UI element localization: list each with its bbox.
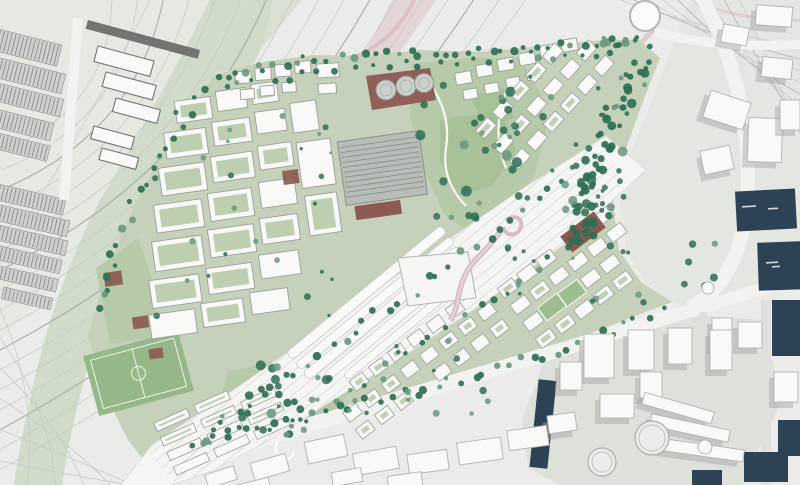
- tree: [455, 62, 460, 67]
- tree: [497, 143, 502, 148]
- tree: [432, 369, 436, 373]
- tree: [118, 225, 126, 233]
- tree: [284, 62, 292, 70]
- tree: [96, 305, 103, 312]
- tree: [189, 443, 195, 449]
- tree: [471, 120, 478, 127]
- tree: [603, 105, 609, 111]
- building-roof: [240, 89, 255, 100]
- tree: [228, 172, 234, 178]
- tree: [256, 360, 266, 370]
- tree: [640, 299, 646, 305]
- tree: [513, 256, 518, 261]
- tree: [573, 229, 580, 236]
- tree: [249, 78, 253, 82]
- tree: [461, 186, 472, 197]
- tree: [522, 249, 526, 253]
- tree: [259, 426, 267, 434]
- building-roof: [774, 372, 798, 402]
- tree: [491, 48, 499, 56]
- tree: [304, 419, 308, 423]
- tree: [521, 45, 526, 50]
- tree: [291, 398, 298, 405]
- building-roof: [547, 412, 577, 434]
- tree: [413, 52, 421, 60]
- building-roof: [290, 100, 320, 133]
- navy-roof-building: [692, 470, 722, 485]
- tree: [273, 363, 281, 371]
- tree: [425, 335, 431, 341]
- tree: [599, 208, 604, 213]
- tree: [295, 61, 300, 66]
- tree: [348, 388, 353, 393]
- tree: [232, 70, 238, 76]
- tree: [238, 413, 246, 421]
- tree: [373, 51, 378, 56]
- tree: [573, 208, 581, 216]
- tree: [561, 181, 569, 189]
- tree: [227, 127, 232, 132]
- tree: [621, 249, 626, 254]
- tree: [323, 124, 329, 130]
- tree: [681, 281, 688, 288]
- tree: [685, 258, 692, 265]
- tree: [152, 175, 158, 181]
- tree: [497, 226, 504, 233]
- tree: [458, 381, 464, 387]
- tree: [243, 425, 250, 432]
- tree: [189, 111, 197, 119]
- tree: [433, 52, 439, 58]
- tree: [474, 244, 481, 251]
- tree: [613, 43, 619, 49]
- building-roof: [721, 24, 750, 46]
- tree: [245, 391, 254, 400]
- tree: [317, 132, 321, 136]
- city-building: [623, 330, 654, 376]
- tree: [358, 318, 364, 324]
- tree: [485, 398, 491, 404]
- tree: [113, 263, 117, 267]
- tree: [563, 53, 567, 57]
- tree: [270, 419, 278, 427]
- tree: [532, 354, 539, 361]
- tree: [290, 373, 296, 379]
- building-roof: [560, 362, 582, 390]
- tree: [330, 278, 334, 282]
- tree: [274, 257, 280, 263]
- tree: [353, 64, 358, 69]
- tree: [242, 69, 250, 77]
- maroon-building: [148, 348, 163, 360]
- tree: [607, 203, 615, 211]
- tree: [296, 405, 304, 413]
- tree: [590, 220, 598, 228]
- tree: [662, 306, 667, 311]
- tree: [286, 77, 293, 84]
- tree: [596, 166, 603, 173]
- tree: [627, 74, 633, 80]
- tree: [439, 177, 447, 185]
- tree: [444, 376, 449, 381]
- tree: [511, 122, 519, 130]
- masterplan-canvas: [0, 0, 800, 485]
- tree: [440, 82, 447, 89]
- building-roof: [484, 82, 500, 94]
- tree: [220, 414, 225, 419]
- tree: [231, 205, 237, 211]
- tree: [571, 257, 574, 260]
- tree: [536, 267, 542, 273]
- tree: [510, 47, 518, 55]
- tree: [225, 434, 232, 441]
- tree: [585, 145, 592, 152]
- tree: [601, 113, 605, 117]
- city-building: [579, 334, 614, 384]
- tree: [397, 52, 401, 56]
- tree: [311, 58, 317, 64]
- tree: [387, 64, 393, 70]
- tree: [283, 399, 291, 407]
- tree: [520, 207, 525, 212]
- tree: [550, 168, 554, 172]
- tree: [471, 56, 475, 60]
- tree: [315, 375, 320, 380]
- tree: [163, 146, 168, 151]
- tree: [361, 395, 368, 402]
- tree: [207, 274, 211, 278]
- tree: [539, 113, 547, 121]
- tree: [505, 87, 515, 97]
- tree: [106, 250, 114, 258]
- tree: [298, 417, 303, 422]
- tree: [625, 111, 630, 116]
- tree: [337, 402, 345, 410]
- tree: [445, 338, 451, 344]
- tree: [574, 142, 579, 147]
- tree: [260, 68, 265, 73]
- tree: [592, 154, 598, 160]
- tree: [581, 156, 590, 165]
- tree: [201, 155, 207, 161]
- tree: [642, 82, 647, 87]
- tree: [607, 242, 614, 249]
- tree: [144, 183, 149, 188]
- tree: [301, 427, 307, 433]
- navy-roof-building: [778, 420, 800, 456]
- tree: [576, 238, 583, 245]
- tree: [226, 75, 232, 81]
- building-roof: [761, 56, 793, 79]
- tree: [498, 94, 504, 100]
- tree: [344, 338, 351, 345]
- tree: [599, 326, 607, 334]
- tree: [362, 383, 367, 388]
- tree: [272, 78, 278, 84]
- tree: [426, 272, 434, 280]
- navy-roof-building: [735, 188, 797, 231]
- tree: [223, 252, 227, 256]
- tree: [299, 69, 304, 74]
- tree: [590, 298, 595, 303]
- building-roof: [738, 322, 762, 348]
- tree: [320, 270, 324, 274]
- tree: [255, 426, 260, 431]
- tree: [630, 316, 635, 321]
- tree: [537, 196, 542, 201]
- tree: [267, 409, 277, 419]
- tree: [565, 244, 571, 250]
- tree: [609, 35, 616, 42]
- tree: [323, 408, 328, 413]
- tree: [504, 106, 512, 114]
- tree: [248, 404, 252, 408]
- tree: [369, 307, 376, 314]
- tree: [528, 75, 532, 79]
- tree: [635, 292, 641, 298]
- tree: [465, 212, 472, 219]
- circular-building: [630, 1, 660, 31]
- tree: [544, 254, 550, 260]
- tree: [319, 174, 325, 180]
- tree: [269, 61, 276, 68]
- tree: [253, 239, 258, 244]
- tree: [102, 291, 108, 297]
- tree: [226, 140, 230, 144]
- tree: [113, 243, 118, 248]
- tree: [594, 54, 600, 60]
- tree: [313, 68, 319, 74]
- tree: [403, 351, 407, 355]
- tree: [477, 201, 482, 206]
- tree: [404, 388, 411, 395]
- tree: [192, 95, 197, 100]
- tree: [380, 376, 386, 382]
- tree: [710, 274, 718, 282]
- tree: [406, 397, 411, 402]
- tree: [550, 56, 556, 62]
- tree: [482, 147, 489, 154]
- tree: [516, 283, 521, 288]
- tree: [514, 130, 520, 136]
- tree: [529, 50, 533, 54]
- tree: [362, 50, 370, 58]
- tree: [185, 278, 190, 283]
- tree: [283, 432, 289, 438]
- tree: [138, 186, 145, 193]
- tree: [414, 64, 421, 71]
- building-roof: [463, 88, 479, 100]
- tree: [284, 372, 290, 378]
- tree: [562, 206, 569, 213]
- storage-tank: [635, 421, 669, 455]
- tree: [570, 165, 575, 170]
- tree: [607, 50, 613, 56]
- silo-tank: [415, 74, 434, 93]
- tree: [469, 411, 474, 416]
- tree: [506, 248, 510, 252]
- tree: [640, 69, 649, 78]
- tree: [289, 424, 294, 429]
- tree: [394, 344, 398, 348]
- tree: [518, 292, 522, 296]
- tree: [582, 229, 590, 237]
- tree: [479, 301, 486, 308]
- tree: [218, 420, 223, 425]
- building-roof: [584, 334, 614, 378]
- tree: [277, 404, 281, 408]
- tree: [306, 364, 311, 369]
- tree: [460, 140, 469, 149]
- tree: [535, 54, 542, 61]
- tree: [539, 356, 546, 363]
- tree: [268, 428, 272, 432]
- tree: [595, 44, 599, 48]
- tree: [621, 194, 627, 200]
- tree: [486, 59, 493, 66]
- tree: [474, 374, 481, 381]
- silo-tank: [376, 80, 396, 100]
- tree: [602, 141, 609, 148]
- tree: [479, 387, 486, 394]
- tree: [568, 196, 577, 205]
- tree: [225, 84, 230, 89]
- tree: [171, 135, 177, 141]
- tree: [509, 60, 513, 64]
- building-roof: [780, 100, 800, 130]
- tree: [127, 199, 132, 204]
- building-roof: [296, 138, 336, 188]
- tree: [329, 151, 332, 154]
- tree: [712, 241, 718, 247]
- tree: [635, 35, 640, 40]
- tree: [211, 427, 216, 432]
- tree: [387, 307, 394, 314]
- tree: [309, 397, 315, 403]
- tree: [501, 150, 512, 161]
- tree: [382, 360, 389, 367]
- tree: [438, 59, 443, 64]
- tree: [489, 235, 497, 243]
- tree: [626, 251, 630, 255]
- tree: [491, 296, 498, 303]
- tree: [313, 352, 321, 360]
- tree: [271, 375, 280, 384]
- tree: [433, 213, 440, 220]
- tree: [449, 215, 455, 221]
- tree: [532, 259, 536, 263]
- tree: [546, 46, 550, 50]
- tree: [593, 203, 598, 208]
- tree: [498, 49, 503, 54]
- tree: [262, 391, 269, 398]
- tree: [396, 350, 400, 354]
- tree: [507, 135, 512, 140]
- tree: [275, 391, 283, 399]
- tree: [589, 232, 597, 240]
- tree: [567, 43, 573, 49]
- maroon-building: [132, 315, 150, 329]
- building-roof: [744, 452, 788, 482]
- silo-tank: [396, 76, 416, 96]
- building-roof: [258, 250, 301, 279]
- tree: [309, 409, 316, 416]
- tree: [621, 320, 625, 324]
- tree: [158, 153, 162, 157]
- tree: [200, 440, 207, 447]
- tree: [618, 147, 628, 157]
- tree: [340, 52, 346, 58]
- tree: [354, 331, 359, 336]
- tree: [216, 74, 222, 80]
- tree: [582, 199, 591, 208]
- small-round-tank: [698, 440, 712, 454]
- tree: [621, 39, 629, 47]
- city-building: [663, 328, 692, 370]
- tree: [647, 44, 653, 50]
- tree: [518, 354, 525, 361]
- tree: [453, 355, 460, 362]
- building-roof: [497, 57, 515, 72]
- tree: [620, 95, 627, 102]
- tree: [614, 104, 619, 109]
- tree: [153, 313, 160, 320]
- tree: [256, 62, 262, 68]
- tree: [619, 76, 624, 81]
- building-roof: [600, 394, 634, 418]
- tree: [443, 325, 448, 330]
- tree: [631, 59, 638, 66]
- tree: [433, 410, 440, 417]
- tree: [304, 293, 311, 300]
- tree: [189, 238, 195, 244]
- tree: [477, 114, 484, 121]
- city-building: [705, 330, 732, 376]
- navy-roof-building: [772, 300, 800, 356]
- tree: [515, 192, 523, 200]
- tree: [607, 121, 616, 130]
- tree: [371, 63, 375, 67]
- tree: [415, 130, 425, 140]
- tree: [624, 86, 633, 95]
- tree: [462, 312, 468, 318]
- tree: [508, 166, 516, 174]
- tree: [364, 411, 369, 416]
- tree: [598, 131, 604, 137]
- tree: [201, 86, 208, 93]
- tree: [581, 208, 589, 216]
- tree: [129, 217, 136, 224]
- tree: [224, 427, 231, 434]
- tree: [210, 433, 216, 439]
- building-roof: [518, 51, 536, 66]
- tree: [617, 178, 623, 184]
- tree: [173, 110, 178, 115]
- masterplan-map: [0, 0, 800, 485]
- tree: [608, 146, 614, 152]
- tree: [445, 264, 450, 269]
- tree: [404, 59, 409, 64]
- tree: [605, 212, 612, 219]
- building-roof: [778, 420, 800, 456]
- tree: [596, 86, 601, 91]
- building-roof: [455, 71, 473, 86]
- tree: [646, 59, 652, 65]
- tree: [326, 375, 333, 382]
- tree: [557, 39, 564, 46]
- tree: [525, 195, 531, 201]
- tree: [181, 124, 187, 130]
